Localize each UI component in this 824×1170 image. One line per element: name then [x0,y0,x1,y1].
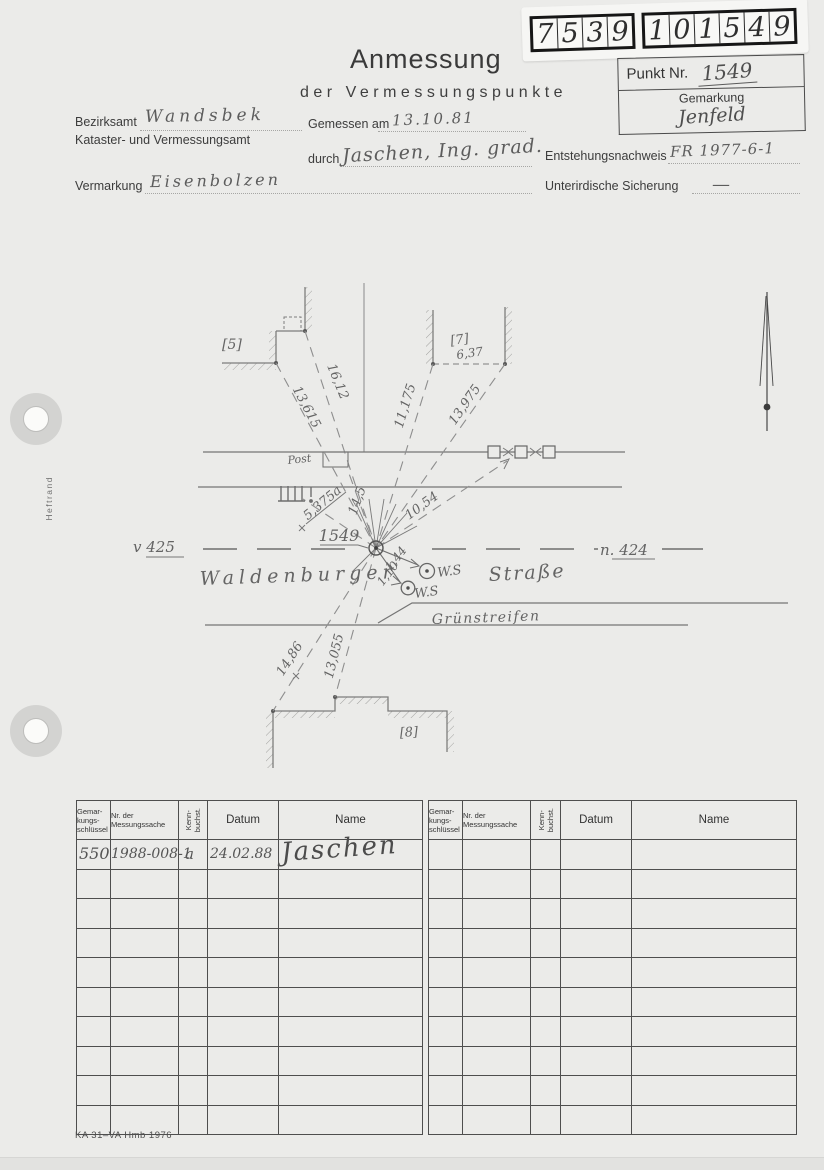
table-row-empty [77,869,423,899]
label-b7-height: 6,37 [455,344,484,362]
table-row-empty [77,958,423,988]
label-5-375a: 5,375a [301,483,345,523]
label-13-055: 13,055 [322,632,348,680]
table-row-empty [77,1017,423,1047]
digit: 1 [645,15,671,46]
label-v425: v 425 [133,538,175,556]
street-lines [198,452,788,625]
table-row-empty [429,1017,797,1047]
heftrand-label: Heftrand [44,476,54,521]
page-title: Anmessung [350,44,502,75]
digit-group-1: 7 5 3 9 [530,13,636,52]
table-row-empty [429,1105,797,1135]
col-gemarkungsschluessel: Gemar- kungs- schlüssel [77,801,111,840]
digit: 3 [583,17,609,48]
sicherung-value: — [712,174,730,195]
table-row-empty [77,928,423,958]
col-messungssache: Nr. der Messungssache [463,801,531,840]
fence-posts [488,446,555,458]
cell-datum: 24.02.88 [208,846,272,862]
bezirksamt-value: Wandsbek [145,105,265,127]
hole-punch-bottom [10,705,62,757]
col-kennbuchstabe: Kenn- buchst. [184,808,202,832]
col-gemarkungsschluessel: Gemar- kungs- schlüssel [429,801,463,840]
digit: 5 [720,12,746,43]
label-b5: [5] [222,337,242,353]
sicherung-rule [692,192,800,194]
point-number-sticker: 7 5 3 9 1 0 1 5 4 9 [521,0,809,61]
survey-point-1549 [369,541,383,555]
col-datum: Datum [208,801,279,840]
entstehungsnachweis-label: Entstehungsnachweis [545,149,667,163]
table-row-empty [429,869,797,899]
col-messungssache: Nr. der Messungssache [111,801,179,840]
col-name: Name [632,801,797,840]
table-row-empty [77,1046,423,1076]
cell-schluessel: 550 [77,844,110,863]
label-13-615: 13,615 [289,384,324,431]
bezirksamt-label: Bezirksamt [75,115,137,129]
page-subtitle: der Vermessungspunkte [300,84,567,102]
digit: 1 [695,13,721,44]
digit: 4 [744,12,770,43]
record-table-left: Gemar- kungs- schlüssel Nr. der Messungs… [76,800,423,1135]
table-row: 550 1988-008-1 a 24.02.88 Jaschen [77,840,423,870]
table-row-empty [77,899,423,929]
digit: 9 [769,11,794,42]
table-row-empty [429,1046,797,1076]
vermarkung-value: Eisenbolzen [150,170,281,191]
label-11-175: 11,175 [392,382,420,430]
grate-symbol [278,486,312,502]
unterirdische-sicherung-label: Unterirdische Sicherung [545,179,678,193]
vermarkung-label: Vermarkung [75,179,142,193]
label-ws2: W.S [413,584,439,602]
table-row-empty [429,958,797,988]
table-row-empty [77,987,423,1017]
arrowhead [500,459,509,469]
gemessen-am-value: 13.10.81 [392,109,475,130]
digit-group-2: 1 0 1 5 4 9 [641,8,797,49]
hole-punch-top [10,393,62,445]
table-row-empty [429,1076,797,1106]
label-16-12: 16,12 [323,362,351,402]
table-row-empty [429,840,797,870]
post-symbol [323,452,348,467]
label-n424: n. 424 [600,541,648,559]
gemessen-rule [378,130,526,132]
label-street-waldenburger: Waldenburger [199,561,397,590]
form-code: KA 31–VA Hmb 1976 [75,1130,172,1141]
bezirksamt-rule [140,129,302,131]
durch-label: durch [308,152,339,166]
table-row-empty [429,987,797,1017]
digit: 7 [533,18,559,49]
punkt-nr-value: 1549 [696,58,757,87]
table-row-empty [429,928,797,958]
label-14-5: 14,5 [346,485,370,517]
gemessen-am-label: Gemessen am [308,117,389,131]
table-row-empty [429,899,797,929]
cell-kenn: a [179,845,194,863]
label-street-strasse: Straße [488,560,566,586]
digit: 0 [670,14,696,45]
col-datum: Datum [561,801,632,840]
label-b8: [8] [399,725,419,741]
entstehungsnachweis-rule [668,162,800,164]
digit: 9 [608,16,633,47]
col-kennbuchstabe: Kenn- buchst. [537,808,555,832]
entstehungsnachweis-value: FR 1977-6-1 [670,139,775,161]
building-5 [222,287,312,370]
digit: 5 [558,18,584,49]
record-table-right: Gemar- kungs- schlüssel Nr. der Messungs… [428,800,797,1135]
punkt-box: Punkt Nr. 1549 Gemarkung Jenfeld [617,54,806,135]
label-ws1: W.S [436,563,462,581]
amt-label: Kataster- und Vermessungsamt [75,133,250,147]
building-8 [266,695,454,768]
table-row-empty [77,1076,423,1106]
vermarkung-rule [145,192,532,194]
label-14-86: 14,86 [274,639,307,678]
label-post: Post [286,452,312,468]
label-point-1549: 1549 [319,526,360,545]
north-arrow [760,292,773,431]
punkt-nr-label: Punkt Nr. [626,64,688,82]
